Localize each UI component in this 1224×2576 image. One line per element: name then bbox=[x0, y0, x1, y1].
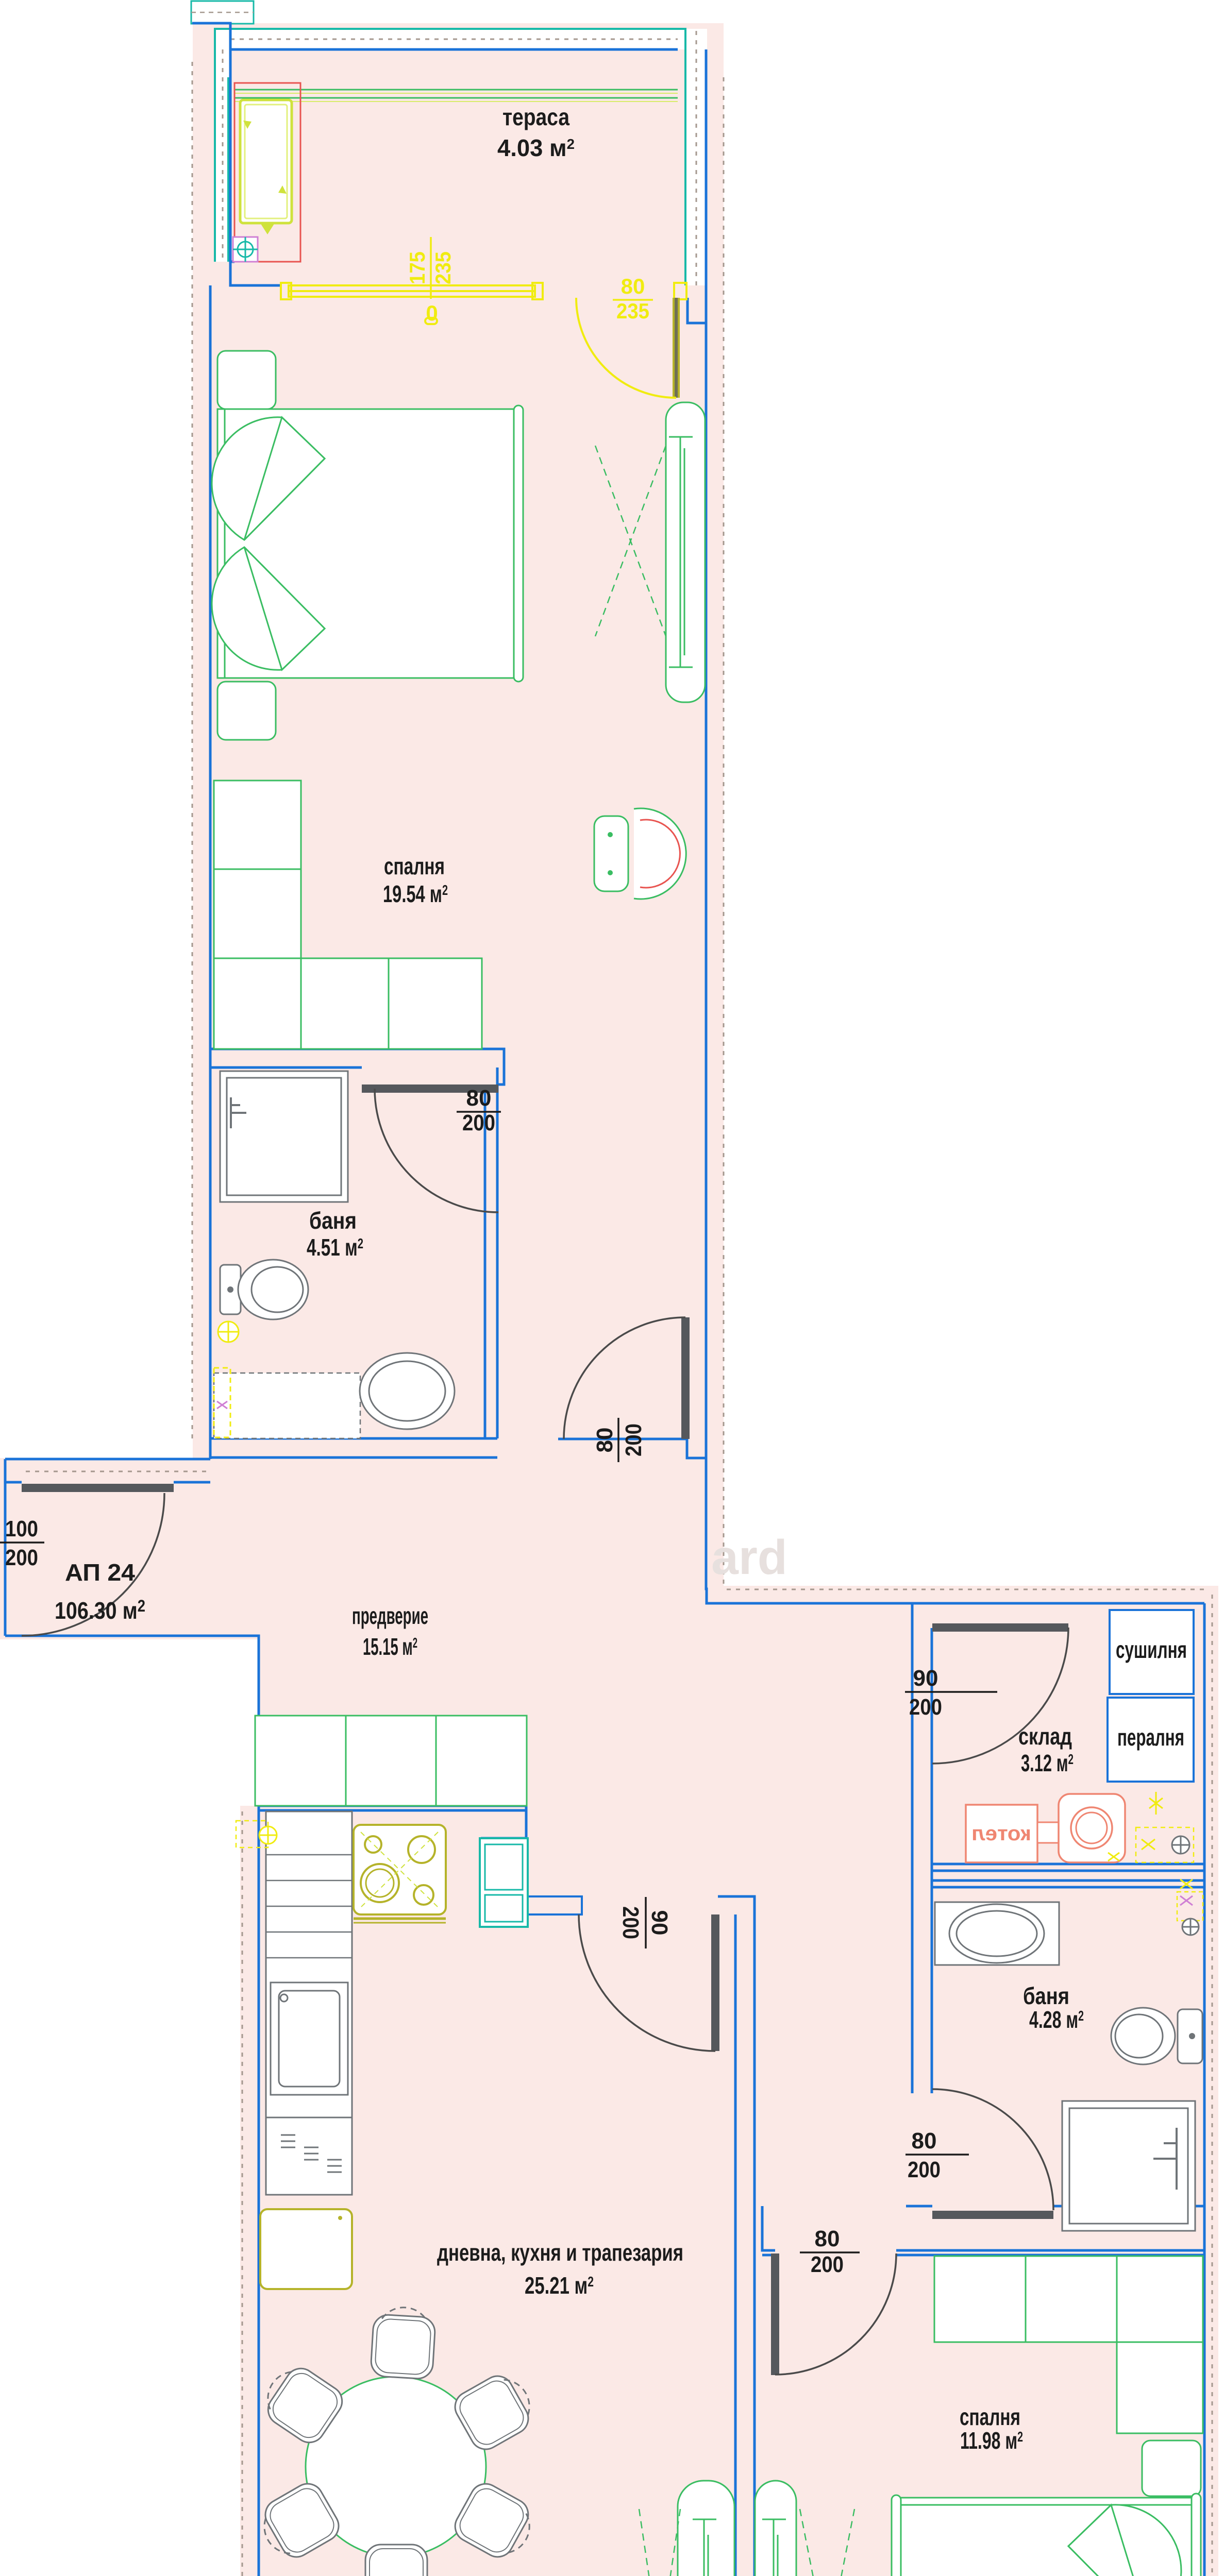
svg-text:80: 80 bbox=[592, 1428, 617, 1453]
svg-text:предверие: предверие bbox=[352, 1602, 428, 1629]
svg-text:100: 100 bbox=[5, 1516, 38, 1541]
svg-text:80: 80 bbox=[815, 2226, 840, 2251]
svg-text:склад: склад bbox=[1018, 1723, 1072, 1750]
svg-text:тераса: тераса bbox=[502, 104, 569, 130]
svg-text:15.15 м2: 15.15 м2 bbox=[363, 1633, 417, 1660]
svg-text:баня: баня bbox=[309, 1207, 357, 1234]
svg-text:сушилня: сушилня bbox=[1116, 1636, 1187, 1663]
svg-text:4.03 м2: 4.03 м2 bbox=[497, 134, 575, 161]
svg-text:200: 200 bbox=[909, 1694, 942, 1720]
svg-text:4.28 м2: 4.28 м2 bbox=[1029, 2006, 1084, 2033]
svg-text:90: 90 bbox=[913, 1666, 938, 1691]
svg-text:ard: ard bbox=[711, 1530, 787, 1585]
svg-text:спалня: спалня bbox=[960, 2403, 1020, 2430]
svg-text:200: 200 bbox=[621, 1423, 646, 1456]
svg-text:80: 80 bbox=[912, 2128, 937, 2154]
svg-text:200: 200 bbox=[462, 1110, 495, 1136]
svg-text:80: 80 bbox=[621, 274, 645, 298]
svg-text:90: 90 bbox=[647, 1910, 672, 1936]
svg-text:АП 24: АП 24 bbox=[65, 1559, 135, 1586]
svg-text:200: 200 bbox=[908, 2157, 941, 2182]
svg-text:11.98 м2: 11.98 м2 bbox=[960, 2427, 1023, 2454]
svg-text:4.51 м2: 4.51 м2 bbox=[307, 1234, 363, 1261]
svg-text:баня: баня bbox=[1023, 1982, 1069, 2009]
svg-text:175: 175 bbox=[405, 251, 429, 284]
svg-text:дневна, кухня и трапезария: дневна, кухня и трапезария bbox=[437, 2239, 683, 2266]
svg-text:200: 200 bbox=[811, 2252, 844, 2277]
svg-text:80: 80 bbox=[466, 1086, 492, 1111]
svg-text:235: 235 bbox=[616, 299, 649, 323]
svg-text:106.30 м2: 106.30 м2 bbox=[55, 1597, 145, 1624]
svg-text:котел: котел bbox=[971, 1822, 1031, 1845]
svg-text:25.21 м2: 25.21 м2 bbox=[525, 2272, 594, 2299]
svg-text:0: 0 bbox=[426, 301, 438, 325]
svg-text:3.12 м2: 3.12 м2 bbox=[1021, 1750, 1074, 1776]
svg-text:235: 235 bbox=[431, 251, 455, 284]
svg-text:200: 200 bbox=[5, 1545, 38, 1570]
svg-text:19.54 м2: 19.54 м2 bbox=[383, 880, 448, 907]
svg-text:200: 200 bbox=[618, 1906, 643, 1939]
svg-text:пералня: пералня bbox=[1117, 1724, 1184, 1751]
svg-text:спалня: спалня bbox=[384, 853, 445, 879]
